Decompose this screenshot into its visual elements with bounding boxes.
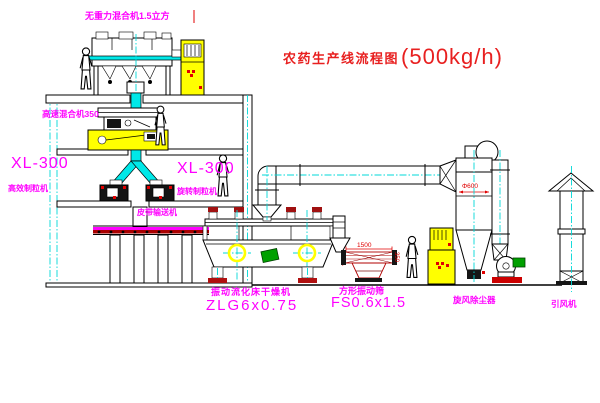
granulator-right-model-label: XL-300	[177, 161, 235, 177]
person-ground	[406, 236, 418, 277]
person-roof	[80, 48, 92, 89]
induced-draft-fan	[492, 244, 525, 283]
screen-length-dimension: 1500	[357, 242, 371, 249]
control-cabinet-roof	[181, 40, 204, 95]
vibrating-screen	[341, 247, 397, 283]
control-cabinet-ground	[428, 228, 455, 284]
granulator-left-model-label: XL-300	[11, 156, 69, 172]
screen-height-dimension: 350	[393, 252, 399, 262]
belt-conveyor-label: 皮带输送机	[137, 209, 177, 217]
ground-line	[46, 283, 562, 287]
fan-label: 引风机	[551, 300, 577, 309]
title-capacity: (500kg/h)	[401, 44, 503, 70]
gravity-mixer-label: 无重力混合机1.5立方	[85, 12, 170, 21]
granulator-right	[146, 180, 174, 201]
granulator-right-name-label: 旋转制粒机	[177, 188, 217, 196]
diagram-title: 农药生产线流程图 (500kg/h)	[283, 44, 503, 70]
belt-conveyor	[93, 226, 209, 283]
return-duct	[490, 150, 510, 258]
cyclone-label: 旋风除尘器	[453, 296, 496, 305]
dryer-name-label: 振动流化床干燥机	[211, 288, 291, 297]
title-text: 农药生产线流程图	[283, 48, 399, 70]
granulator-left-name-label: 高效制粒机	[8, 185, 48, 193]
exhaust-duct	[262, 160, 456, 192]
cyclone-diameter-dimension: Φ600	[462, 183, 478, 190]
granulator-left	[100, 180, 128, 201]
high-speed-mixer-label: 高速混合机350	[42, 110, 99, 119]
dryer-model-label: ZLG6x0.75	[206, 298, 298, 313]
screen-model-label: FS0.6x1.5	[331, 296, 406, 311]
gravity-mixer	[84, 10, 194, 95]
exhaust-stack	[549, 166, 593, 292]
process-flow-diagram: 农药生产线流程图 (500kg/h) 无重力混合机1.5立方 高速混合机350 …	[0, 0, 600, 403]
